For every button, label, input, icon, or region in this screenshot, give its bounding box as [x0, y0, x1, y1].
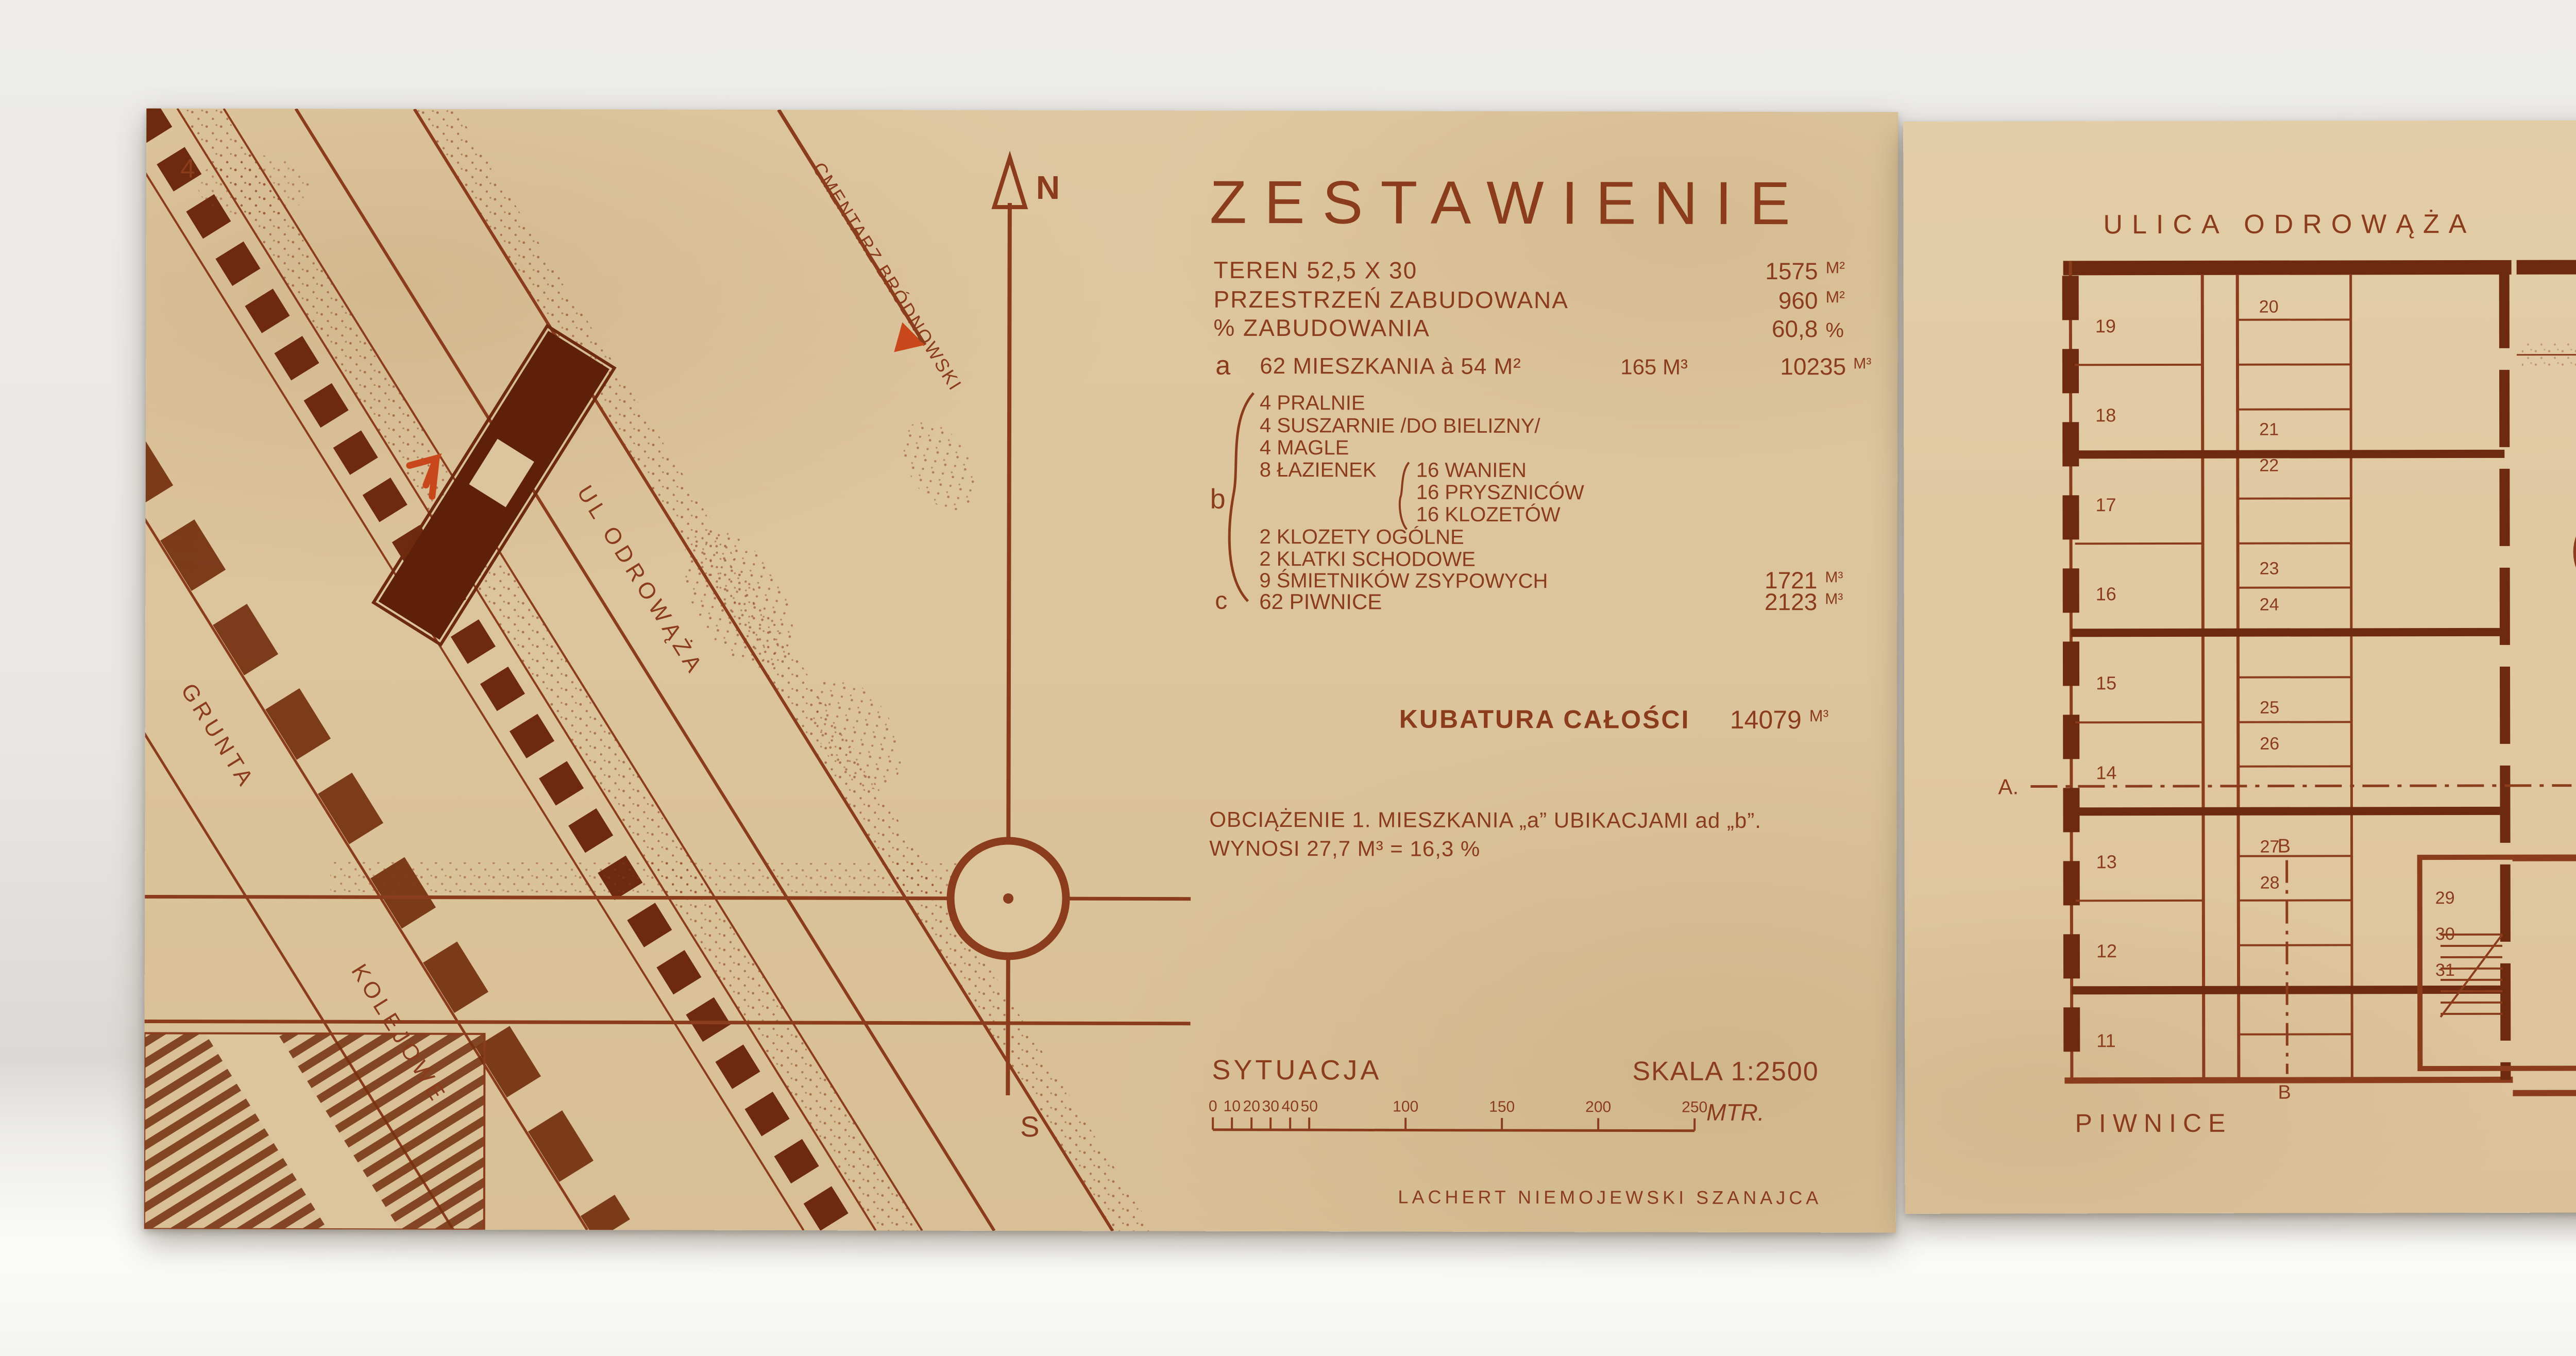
cemetery-line: CMENTARZ BRÓDNOWSKI	[778, 110, 967, 395]
utility-wing: SUSZARNIA PRALNIA MAGIEL W.C. OGÓLNE SKŁ…	[2513, 848, 2576, 1134]
scale-bar: 0 10 20 30 40 50 100 150 200 250	[1209, 1098, 1708, 1131]
section-label-b: B	[2278, 1082, 2291, 1104]
room-number: 11	[2096, 1030, 2115, 1051]
tick: 20	[1243, 1098, 1260, 1115]
grunta-label: GRUNTA	[176, 679, 260, 793]
site-plan-drawing: CMENTARZ BRÓDNOWSKI	[144, 108, 1899, 1232]
roundabout	[951, 841, 1066, 956]
item-b-line: 9 ŚMIETNIKÓW ZSYPOWYCH	[1259, 568, 1548, 592]
room-number: 28	[2260, 873, 2280, 893]
room-number: 24	[2260, 595, 2279, 615]
row-teren-label: TEREN 52,5 X 30	[1214, 257, 1418, 284]
room-number: 12	[2096, 940, 2117, 961]
item-b-line: 4 PRALNIE	[1260, 392, 1365, 414]
bottom-left-blocks	[144, 1033, 485, 1229]
tick: 200	[1585, 1098, 1611, 1115]
tick: 0	[1209, 1098, 1217, 1115]
room-number: 18	[2095, 404, 2116, 426]
compass-n: N	[1036, 169, 1060, 206]
stipple-path	[2522, 341, 2576, 369]
room-number: 21	[2259, 420, 2279, 439]
row-zabudowania-value: 60,8	[1772, 315, 1818, 342]
row-teren-value: 1575	[1765, 258, 1818, 284]
room-number: 31	[2435, 960, 2455, 980]
load-line-1: OBCIĄŻENIE 1. MIESZKANIA „a” UBIKACJAMI …	[1209, 807, 1761, 833]
row-zabudowania-unit: %	[1825, 319, 1844, 342]
stipple-patch	[198, 155, 311, 217]
section-line-b	[2287, 860, 2287, 1074]
row-zabudowania-label: % ZABUDOWANIA	[1213, 314, 1430, 342]
room-numbers-mid: 20 21 22 23 24 25 26 27 28 29 30 31	[2259, 297, 2455, 980]
kubatura-value: 14079	[1730, 705, 1802, 734]
item-a-unit: M³	[1853, 355, 1871, 372]
row-przestrzen-unit: M²	[1825, 287, 1845, 306]
item-a-value: 10235	[1780, 353, 1846, 380]
signature-left: LACHERT NIEMOJEWSKI SZANAJCA	[1398, 1186, 1822, 1209]
row-przestrzen-value: 960	[1778, 287, 1818, 314]
courtyard: ŚMIETNIK BAS	[2517, 266, 2576, 785]
sytuacja-block: SYTUACJA SKALA 1:2500 0 10 20 30 40 50 1…	[1209, 1055, 1819, 1131]
street-name: ULICA ODROWĄŻA	[2103, 209, 2476, 240]
room-number: 27	[2260, 837, 2280, 857]
tick: 50	[1301, 1098, 1318, 1115]
tick: 30	[1262, 1098, 1279, 1115]
section-line-a	[2030, 786, 2571, 787]
room-number: 16	[2096, 583, 2116, 604]
room-number: 19	[2095, 315, 2116, 336]
item-b-line: 4 SUSZARNIE /DO BIELIZNY/	[1260, 414, 1541, 437]
kubatura-unit: M³	[1809, 706, 1829, 725]
room-number: 13	[2096, 851, 2117, 872]
row-teren-unit: M²	[1826, 258, 1845, 277]
tick: 40	[1282, 1098, 1299, 1115]
item-c-key: c	[1215, 587, 1227, 615]
room-number: 23	[2260, 559, 2279, 579]
room-number: 15	[2096, 672, 2116, 693]
basement-plan: 19 18 17 16 15 14 13 12 11 20 21 22 23 2…	[1997, 261, 2576, 1104]
room-number: 14	[2096, 762, 2116, 783]
site-map: CMENTARZ BRÓDNOWSKI	[144, 108, 1193, 1231]
mid-partitions	[2238, 319, 2352, 1034]
item-b-line: 16 KLOZETÓW	[1416, 503, 1561, 527]
item-c-unit: M³	[1825, 590, 1843, 607]
zestawienie-title: ZESTAWIENIE	[1210, 168, 1808, 238]
zestawienie-table: ZESTAWIENIE TEREN 52,5 X 30 1575 M² PRZE…	[1208, 168, 1872, 862]
item-c-label: 62 PIWNICE	[1259, 589, 1382, 614]
room-numbers-left: 19 18 17 16 15 14 13 12 11	[2095, 315, 2117, 1051]
item-b-line: 2 KLOZETY OGÓLNE	[1259, 525, 1464, 549]
sytuacja-title: SYTUACJA	[1212, 1055, 1382, 1086]
tick: 250	[1682, 1099, 1707, 1116]
section-label-b: B	[2278, 836, 2291, 857]
item-a-key: a	[1215, 351, 1230, 381]
left-board: CMENTARZ BRÓDNOWSKI	[144, 108, 1899, 1232]
item-b-line: 8 ŁAZIENEK	[1260, 459, 1377, 481]
tick: 100	[1393, 1098, 1418, 1115]
item-a-per: 165 M³	[1620, 354, 1688, 379]
stipple-patch	[888, 408, 990, 523]
item-b-line: 4 MAGLE	[1260, 436, 1349, 459]
item-b-unit: M³	[1825, 569, 1843, 586]
item-b-line: 16 WANIEN	[1416, 459, 1527, 482]
room-number: 20	[2259, 297, 2279, 317]
item-b-key: b	[1210, 484, 1226, 515]
page-number: 4	[180, 154, 195, 184]
tick: 10	[1224, 1098, 1241, 1115]
compass-s: S	[1020, 1110, 1039, 1143]
brace-lazienki	[1400, 463, 1409, 530]
north-arrowhead	[994, 158, 1025, 207]
item-c-value: 2123	[1765, 588, 1817, 615]
room-number: 29	[2435, 888, 2455, 908]
item-b-line: 16 PRYSZNICÓW	[1416, 481, 1584, 504]
floor-plan-drawing: ULICA ODROWĄŻA SKALA 0 1 2 3 4 5 10 MTR.	[1903, 118, 2576, 1214]
brace-b	[1229, 393, 1253, 601]
load-line-2: WYNOSI 27,7 M³ = 16,3 %	[1209, 836, 1480, 861]
right-board: ULICA ODROWĄŻA SKALA 0 1 2 3 4 5 10 MTR.	[1903, 118, 2576, 1214]
photo-backdrop: CMENTARZ BRÓDNOWSKI	[0, 0, 2576, 1356]
scale-unit: MTR.	[1706, 1099, 1765, 1126]
piwnice-label: PIWNICE	[2075, 1109, 2232, 1138]
room-number: 25	[2260, 698, 2279, 718]
kubatura-label: KUBATURA CAŁOŚCI	[1399, 705, 1690, 734]
room-number: 22	[2259, 456, 2279, 476]
cemetery-label: CMENTARZ BRÓDNOWSKI	[808, 159, 966, 395]
tick: 150	[1489, 1098, 1515, 1115]
item-b-line: 2 KLATKI SCHODOWE	[1259, 548, 1475, 571]
stipple-road-edge	[330, 862, 969, 893]
room-number: 26	[2260, 734, 2279, 754]
item-a-label: 62 MIESZKANIA à 54 M²	[1260, 353, 1521, 379]
row-przestrzen-label: PRZESTRZEŃ ZABUDOWANA	[1213, 286, 1569, 313]
room-number: 17	[2095, 494, 2116, 515]
sytuacja-scale: SKALA 1:2500	[1632, 1056, 1819, 1087]
section-label-a: A.	[1998, 774, 2019, 799]
